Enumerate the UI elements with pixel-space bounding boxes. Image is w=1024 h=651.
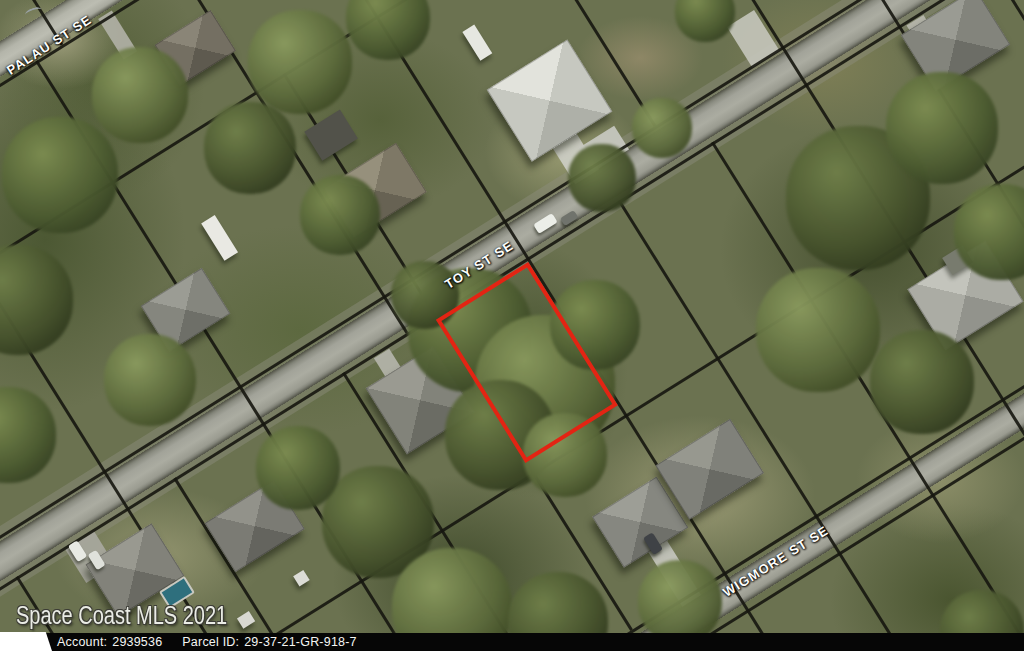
parcel-id-value: 29-37-21-GR-918-7 [244, 635, 356, 649]
account-value: 2939536 [112, 635, 162, 649]
mls-logo-swoosh-icon [24, 6, 43, 19]
mls-watermark: Space Coast MLS 2021 [16, 601, 227, 630]
annotation-overlay: Space Coast MLS 2021 Account:2939536Parc… [0, 0, 1024, 651]
parcel-info-text: Account:2939536Parcel ID:29-37-21-GR-918… [57, 633, 357, 651]
aerial-parcel-map: PALAU ST SE TOY ST SE WIGMORE ST SE Spac… [0, 0, 1024, 651]
parcel-info-bar: Account:2939536Parcel ID:29-37-21-GR-918… [0, 633, 1024, 651]
parcel-id-label: Parcel ID: [182, 635, 239, 649]
mls-logo [0, 632, 52, 651]
account-label: Account: [57, 635, 107, 649]
